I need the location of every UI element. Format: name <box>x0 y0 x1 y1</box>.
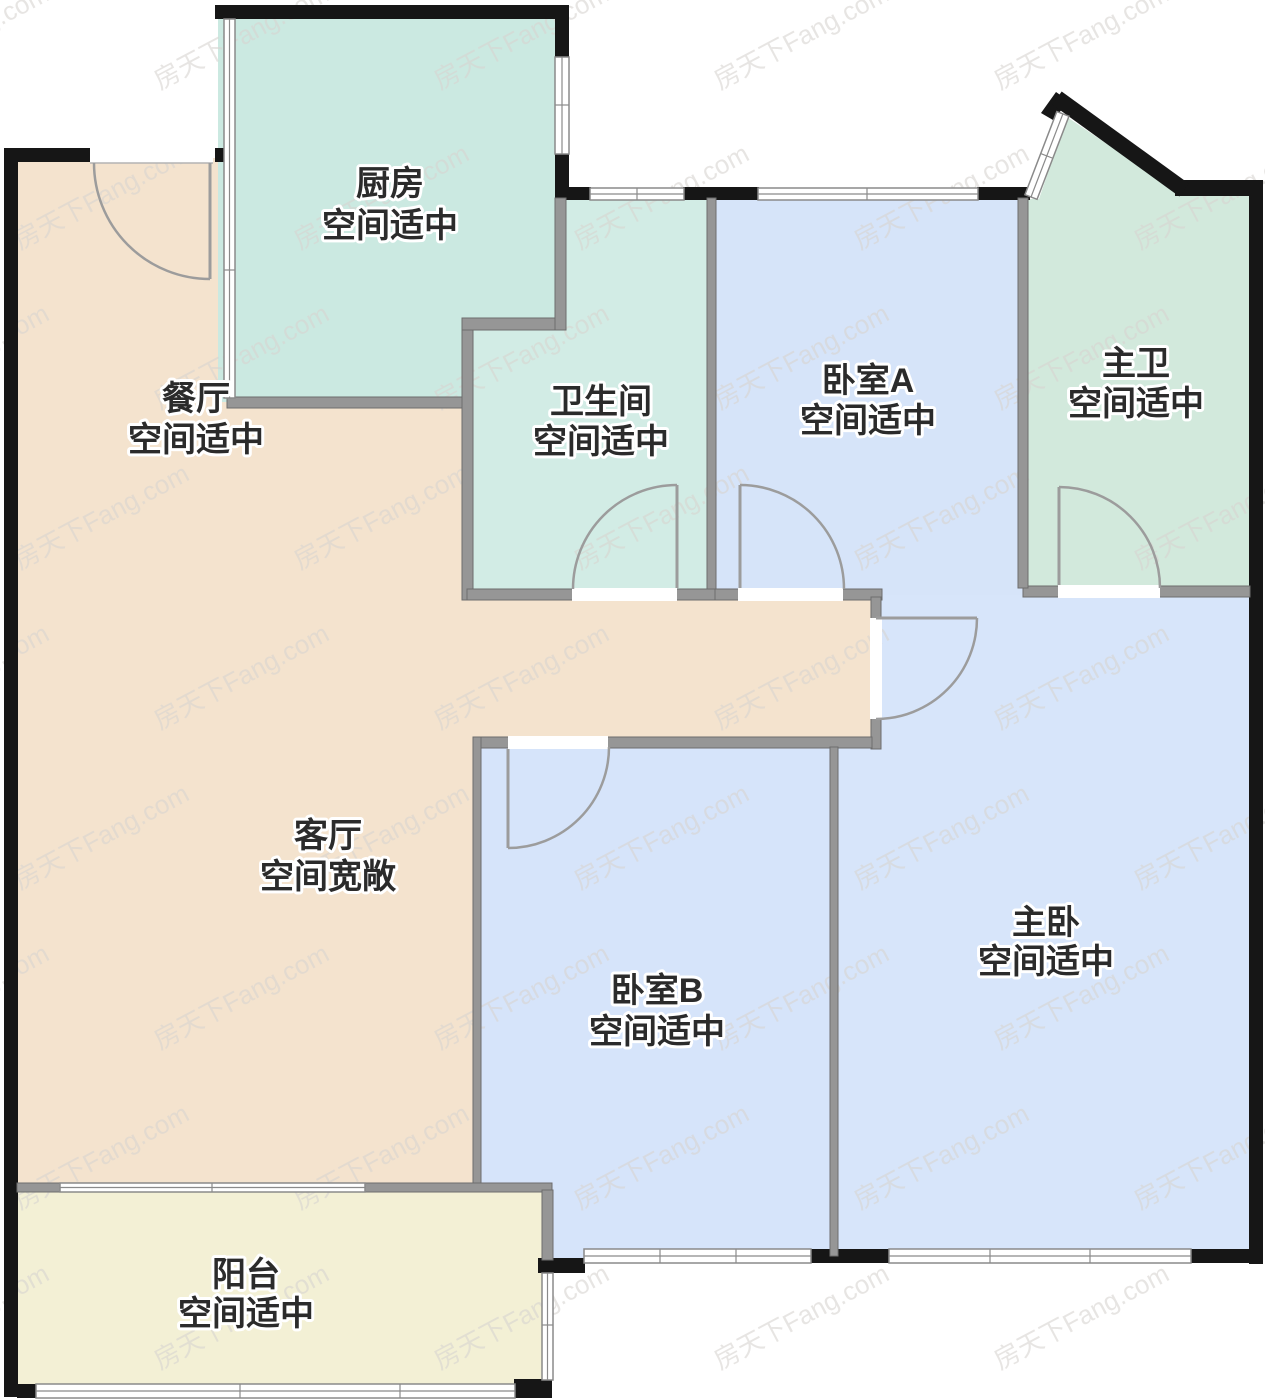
room-desc-bathroom: 空间适中 <box>533 423 669 461</box>
watermark-text: 房天下Fang.com <box>709 0 894 95</box>
walls-part <box>1190 1249 1263 1263</box>
walls-part <box>17 1384 37 1398</box>
walls-part <box>467 589 573 600</box>
watermark-text: 房天下Fang.com <box>989 1258 1174 1375</box>
walls-part <box>676 589 716 600</box>
window-kitchen-left <box>224 19 235 398</box>
floorplan: 房天下Fang.com房天下Fang.com房天下Fang.com房天下Fang… <box>0 0 1265 1400</box>
walls-part <box>830 747 838 1256</box>
walls-part <box>1249 188 1263 1264</box>
openings-part <box>572 588 677 601</box>
window-balcony-bottom <box>36 1384 515 1398</box>
walls-part <box>542 1190 553 1260</box>
openings-part <box>508 736 608 749</box>
room-label-master-bedroom: 主卧 <box>1012 904 1080 942</box>
walls-part <box>514 1379 552 1398</box>
walls-part <box>215 5 569 19</box>
room-desc-balcony: 空间适中 <box>178 1295 314 1333</box>
walls-part <box>17 1183 61 1192</box>
window-balcony-right <box>542 1273 553 1380</box>
window-bedroom-b-bottom <box>584 1249 811 1263</box>
room-desc-living: 空间宽敞 <box>260 857 397 896</box>
watermark-text: 房天下Fang.com <box>709 1258 894 1375</box>
room-label-bedroom-b: 卧室B <box>611 971 704 1010</box>
room-desc-bedroom-a: 空间适中 <box>800 402 936 440</box>
walls-part <box>683 187 759 200</box>
walls-part <box>810 1249 890 1263</box>
walls-part <box>364 1183 552 1192</box>
room-label-bathroom: 卫生间 <box>550 383 652 421</box>
room-desc-kitchen: 空间适中 <box>322 207 458 245</box>
window-bathroom-top <box>590 188 684 200</box>
walls-part <box>707 198 716 600</box>
walls-part <box>555 5 569 59</box>
room-label-kitchen: 厨房 <box>356 165 424 203</box>
openings-part <box>870 618 882 719</box>
walls-part <box>1018 198 1028 588</box>
walls-part <box>555 198 566 330</box>
room-desc-dining: 空间适中 <box>128 421 264 459</box>
window-bedroom-a-top <box>758 188 978 200</box>
walls-part <box>606 737 872 748</box>
room-desc-master-bath: 空间适中 <box>1068 385 1204 423</box>
room-label-master-bath: 主卫 <box>1102 345 1170 383</box>
openings-part <box>738 588 843 601</box>
room-label-balcony: 阳台 <box>212 1256 280 1294</box>
room-label-living: 客厅 <box>294 816 362 855</box>
watermark-text: 房天下Fang.com <box>989 0 1174 95</box>
room-label-bedroom-a: 卧室A <box>822 361 915 400</box>
window-master-bedroom-bottom <box>889 1249 1191 1263</box>
room-desc-master-bedroom: 空间适中 <box>978 943 1114 981</box>
walls-part <box>715 589 739 600</box>
walls-part <box>1159 586 1250 597</box>
room-desc-bedroom-b: 空间适中 <box>589 1013 725 1051</box>
room-label-dining: 餐厅 <box>162 380 230 418</box>
walls-part <box>4 148 18 1397</box>
walls-part <box>473 737 481 1184</box>
watermark-text: 房天下Fang.com <box>0 0 54 95</box>
openings-part <box>1058 585 1160 598</box>
walls-part <box>227 397 472 408</box>
floorplan-svg: 房天下Fang.com房天下Fang.com房天下Fang.com房天下Fang… <box>0 0 1265 1400</box>
window-kitchen-right <box>555 57 569 154</box>
walls-part <box>462 318 565 330</box>
window-living-balcony <box>60 1183 365 1192</box>
walls-part <box>462 318 473 600</box>
openings-part <box>90 147 213 163</box>
